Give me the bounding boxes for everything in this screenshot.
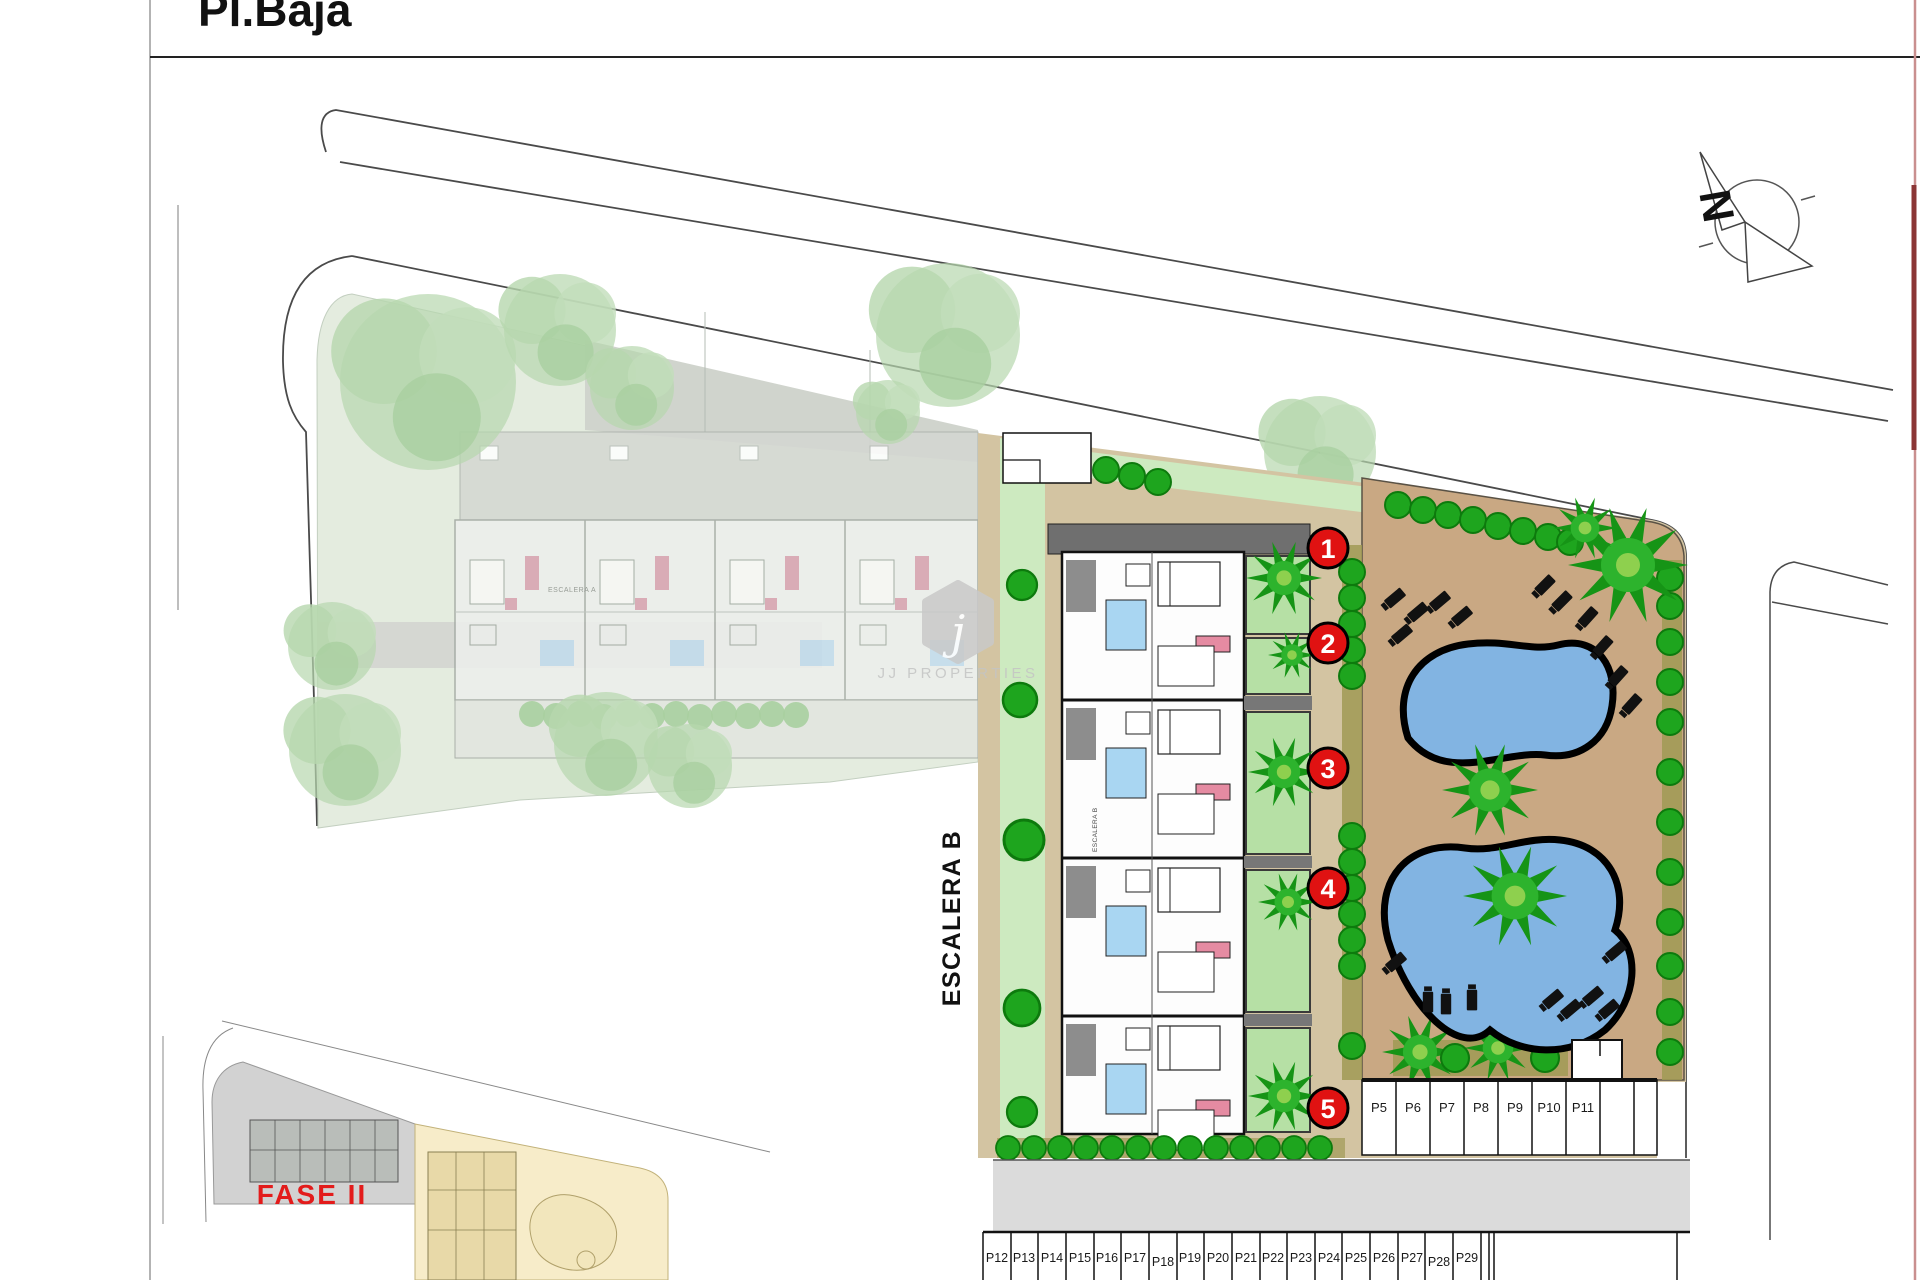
parking-stall-label: P8 bbox=[1473, 1100, 1489, 1115]
parking-stall-label: P17 bbox=[1124, 1251, 1146, 1265]
parking-stall-label: P25 bbox=[1345, 1251, 1367, 1265]
parking-stall-label: P11 bbox=[1572, 1100, 1594, 1115]
compass-tick bbox=[1699, 243, 1713, 247]
unit-marker-5: 5 bbox=[1308, 1088, 1348, 1128]
fase2-area: FASE II bbox=[212, 1062, 415, 1210]
parking-stall-label: P6 bbox=[1405, 1100, 1421, 1115]
north-compass: N bbox=[1691, 152, 1815, 282]
parking-stall-label: P28 bbox=[1428, 1255, 1450, 1269]
parking-stall-label: P12 bbox=[986, 1251, 1008, 1265]
escalera-b-label: ESCALERA B bbox=[938, 830, 966, 1007]
unit-marker-3: 3 bbox=[1308, 748, 1348, 788]
parking-stall-label: P13 bbox=[1013, 1251, 1035, 1265]
parking-stall-label: P27 bbox=[1401, 1251, 1423, 1265]
parking-stall-label: P20 bbox=[1207, 1251, 1229, 1265]
current-phase-key-area bbox=[415, 1124, 668, 1280]
parking-row-lower: P12 P13 P14 P15 P16 P17 P18 P19 P20 P21 … bbox=[983, 1232, 1690, 1280]
svg-text:1: 1 bbox=[1320, 534, 1335, 564]
parking-stall-label: P26 bbox=[1373, 1251, 1395, 1265]
unit-marker-1: 1 bbox=[1308, 528, 1348, 568]
parking-stall-label: P18 bbox=[1152, 1255, 1174, 1269]
pool-upper bbox=[1403, 643, 1613, 763]
parking-stall-label: P22 bbox=[1262, 1251, 1284, 1265]
parking-stall-label: P24 bbox=[1318, 1251, 1340, 1265]
road-strip bbox=[993, 1160, 1690, 1232]
unit-marker-2: 2 bbox=[1308, 623, 1348, 663]
parking-stall-label: P29 bbox=[1456, 1251, 1478, 1265]
parking-stall-label: P15 bbox=[1069, 1251, 1091, 1265]
entry-structure bbox=[1003, 433, 1091, 483]
watermark-brand: JJ PROPERTIES bbox=[877, 665, 1038, 682]
parking-row-upper: P5 P6 P7 P8 P9 P10 P11 bbox=[1362, 1080, 1657, 1155]
svg-text:2: 2 bbox=[1320, 629, 1335, 659]
parking-stall-label: P19 bbox=[1179, 1251, 1201, 1265]
parking-stall-label: P16 bbox=[1096, 1251, 1118, 1265]
current-phase-site: ESCALERA B bbox=[978, 433, 1688, 1160]
parking-stall-label: P5 bbox=[1371, 1100, 1387, 1115]
escalera-a-label: ESCALERA A bbox=[548, 587, 596, 594]
key-plan: FASE II bbox=[203, 1021, 770, 1280]
svg-text:3: 3 bbox=[1320, 754, 1335, 784]
parking-stall-label: P10 bbox=[1537, 1100, 1560, 1115]
terrace-gardens bbox=[1246, 556, 1310, 1132]
fase2-label: FASE II bbox=[257, 1179, 367, 1210]
site-plan-canvas: Pl.Baja bbox=[0, 0, 1920, 1280]
svg-text:4: 4 bbox=[1320, 874, 1335, 904]
escalera-b-inner-label: ESCALERA B bbox=[1092, 808, 1099, 852]
parking-stall-label: P7 bbox=[1439, 1100, 1455, 1115]
page-title: Pl.Baja bbox=[198, 0, 352, 36]
east-street-lines bbox=[1770, 562, 1888, 1240]
svg-text:5: 5 bbox=[1320, 1094, 1335, 1124]
parking-stall-label: P14 bbox=[1041, 1251, 1063, 1265]
parking-stall-label: P23 bbox=[1290, 1251, 1312, 1265]
unit-marker-4: 4 bbox=[1308, 868, 1348, 908]
parking-stall-label: P9 bbox=[1507, 1100, 1523, 1115]
compass-tick bbox=[1801, 196, 1815, 200]
pool-structure bbox=[1572, 1040, 1622, 1080]
parking-stall-label: P21 bbox=[1235, 1251, 1257, 1265]
